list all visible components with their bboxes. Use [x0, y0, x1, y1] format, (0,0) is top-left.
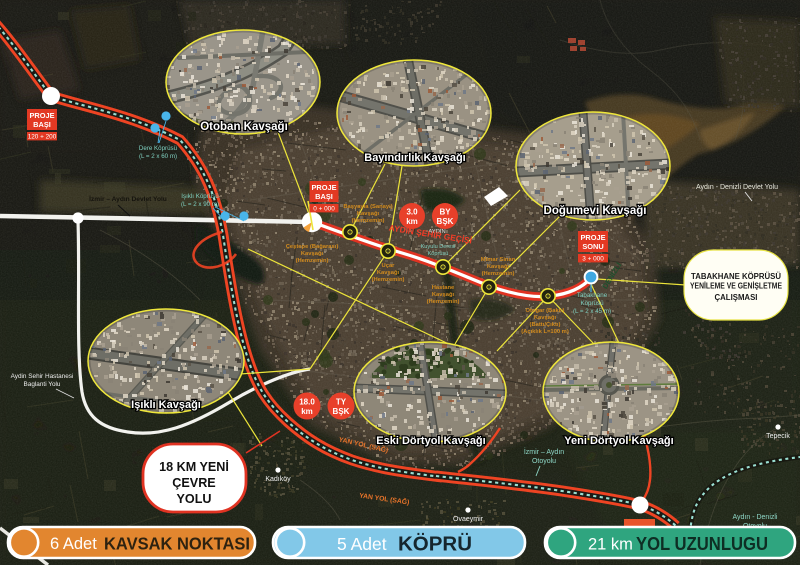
svg-text:Tabakhane: Tabakhane [577, 292, 608, 299]
svg-text:PROJE: PROJE [29, 111, 54, 120]
svg-text:İzmir – Aydın Devlet Yolu: İzmir – Aydın Devlet Yolu [89, 195, 167, 203]
svg-text:18 KM YENİ: 18 KM YENİ [159, 459, 229, 474]
svg-text:PROJE: PROJE [311, 183, 336, 192]
svg-text:5 Adet: 5 Adet [337, 534, 387, 554]
svg-text:(Battı/Çıktı): (Battı/Çıktı) [530, 322, 561, 328]
svg-text:BAŞI: BAŞI [315, 192, 333, 201]
svg-text:Işıklı Kavşağı: Işıklı Kavşağı [131, 399, 201, 411]
svg-text:Otogar (Bakır): Otogar (Bakır) [526, 308, 565, 314]
svg-text:3 + 000: 3 + 000 [582, 256, 604, 263]
svg-text:18.0: 18.0 [299, 398, 315, 407]
svg-text:İzmir – Aydın: İzmir – Aydın [524, 447, 564, 456]
svg-text:Otoban Kavşağı: Otoban Kavşağı [200, 121, 288, 133]
svg-text:(Hemzemin): (Hemzemin) [427, 299, 460, 305]
svg-text:(Hemzemin): (Hemzemin) [372, 277, 405, 283]
svg-text:Kavşağı: Kavşağı [357, 211, 380, 217]
svg-text:(Açıklık L=100 m): (Açıklık L=100 m) [521, 329, 569, 335]
svg-text:Kavşağı: Kavşağı [487, 264, 510, 270]
svg-text:PROJE: PROJE [580, 233, 605, 242]
svg-text:(Hemzemin): (Hemzemin) [482, 271, 515, 277]
svg-text:SONU: SONU [582, 242, 603, 251]
svg-text:YENİLEME VE GENİŞLETME: YENİLEME VE GENİŞLETME [690, 282, 782, 291]
svg-text:Hastane: Hastane [432, 285, 455, 291]
svg-text:Kadıköy: Kadıköy [265, 476, 291, 483]
svg-text:Işıklı Köprüsü: Işıklı Köprüsü [181, 193, 219, 200]
svg-text:TABAKHANE KÖPRÜSÜ: TABAKHANE KÖPRÜSÜ [691, 272, 781, 281]
svg-text:BŞK: BŞK [437, 217, 454, 226]
svg-text:YOL UZUNLUGU: YOL UZUNLUGU [636, 534, 768, 554]
svg-text:YOLU: YOLU [177, 492, 212, 506]
svg-text:Kuyulu Deresi: Kuyulu Deresi [421, 244, 456, 250]
svg-text:Kavşağı: Kavşağı [301, 251, 324, 257]
svg-text:BŞK: BŞK [333, 407, 350, 416]
svg-text:Kavşağı: Kavşağı [432, 292, 455, 298]
svg-text:Uçar: Uçar [382, 263, 396, 269]
svg-text:BAŞI: BAŞI [33, 120, 51, 129]
svg-text:Eski Dörtyol Kavşağı: Eski Dörtyol Kavşağı [376, 435, 485, 447]
svg-text:TY: TY [336, 398, 347, 407]
svg-text:Tepecik: Tepecik [766, 433, 790, 440]
svg-text:(L = 2 x 90 m): (L = 2 x 90 m) [181, 201, 219, 208]
svg-text:6 Adet: 6 Adet [50, 535, 97, 553]
svg-text:Mimar Sinan: Mimar Sinan [481, 257, 516, 263]
svg-text:Bayındırlık Kavşağı: Bayındırlık Kavşağı [364, 152, 466, 164]
svg-text:Kavşağı: Kavşağı [377, 270, 400, 276]
svg-text:(Hemzemin): (Hemzemin) [352, 218, 385, 224]
svg-text:Başyayla (Sanayi): Başyayla (Sanayi) [343, 204, 392, 210]
svg-text:Aydin Sehir Hastanesi: Aydin Sehir Hastanesi [11, 373, 74, 380]
svg-text:Aydın - Denizli Devlet Yolu: Aydın - Denizli Devlet Yolu [696, 184, 778, 191]
svg-text:Kavşağı: Kavşağı [534, 315, 557, 321]
svg-text:3.0: 3.0 [406, 208, 418, 217]
svg-text:(L = 2 x 45 m): (L = 2 x 45 m) [573, 308, 611, 315]
svg-text:Yeni Dörtyol Kavşağı: Yeni Dörtyol Kavşağı [564, 435, 673, 447]
svg-text:21 km: 21 km [588, 536, 633, 554]
svg-text:(L = 2 x 60 m): (L = 2 x 60 m) [139, 153, 177, 160]
svg-text:Aydın - Denizli: Aydın - Denizli [732, 514, 777, 521]
svg-text:Dere Köprüsü: Dere Köprüsü [139, 145, 178, 152]
svg-text:Otoyolu: Otoyolu [532, 458, 556, 465]
svg-text:km: km [301, 407, 313, 416]
svg-text:Baglanti Yolu: Baglanti Yolu [24, 381, 61, 388]
svg-text:KAVSAK NOKTASI: KAVSAK NOKTASI [104, 534, 250, 554]
svg-text:Çeştepe (Bağarası): Çeştepe (Bağarası) [286, 244, 339, 250]
svg-text:Köprüsü: Köprüsü [580, 300, 604, 307]
svg-text:BY: BY [439, 208, 451, 217]
svg-text:Köprüsü: Köprüsü [428, 251, 449, 257]
svg-text:Doğumevi Kavşağı: Doğumevi Kavşağı [544, 205, 647, 217]
svg-text:ÇEVRE: ÇEVRE [172, 476, 215, 490]
svg-text:120 + 200: 120 + 200 [28, 134, 57, 141]
svg-text:ÇALIŞMASI: ÇALIŞMASI [715, 293, 758, 302]
svg-text:0 + 000: 0 + 000 [313, 206, 335, 213]
svg-text:Ovaeymir: Ovaeymir [453, 516, 484, 523]
svg-text:KÖPRÜ: KÖPRÜ [398, 533, 472, 556]
svg-text:(Hemzemin): (Hemzemin) [296, 258, 329, 264]
